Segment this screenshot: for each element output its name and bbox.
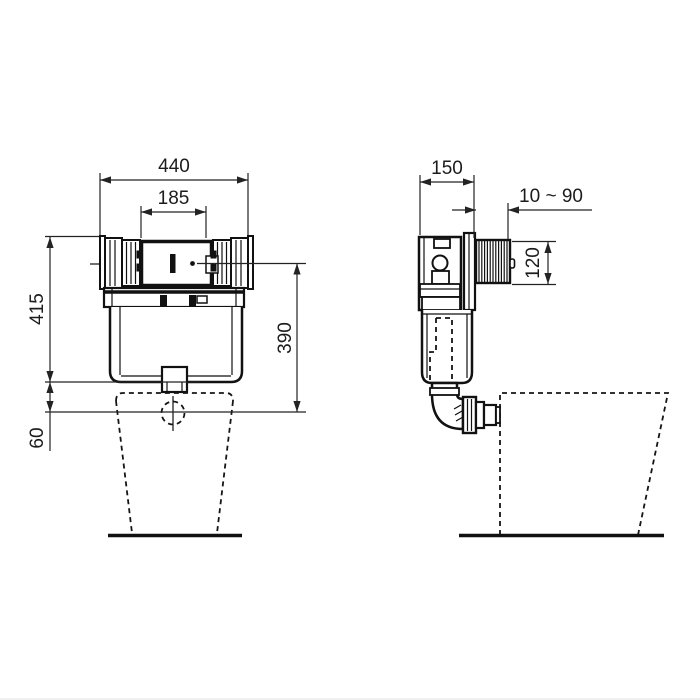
dim-opening-width: 185 (141, 188, 206, 238)
arrowhead (195, 208, 206, 215)
dim-depth: 150 (420, 158, 474, 238)
arrowhead (293, 264, 300, 275)
dim-label-440: 440 (158, 156, 190, 177)
spacer-nub (510, 259, 515, 268)
dim-label-415: 415 (27, 293, 48, 325)
outlet-elbow (430, 383, 463, 429)
dim-spacer-height: 120 (512, 242, 556, 285)
dim-label-60: 60 (27, 427, 48, 448)
arrowhead (46, 401, 53, 412)
arrowhead (544, 273, 551, 284)
arrowhead (46, 237, 53, 248)
arrowhead (237, 176, 248, 183)
arrowhead (463, 178, 474, 185)
flush-button-slot (170, 254, 176, 273)
connector-plate (476, 402, 484, 428)
compartment-base (422, 297, 460, 310)
connector-nozzle (484, 405, 496, 425)
rail-tab (160, 295, 167, 307)
toilet-pan-outline-front (116, 393, 233, 533)
nozzle-tip (496, 407, 500, 423)
water-tank-side (422, 310, 472, 383)
arrowhead (508, 206, 519, 213)
flush-outlet-stub (162, 367, 187, 392)
arrowhead (544, 242, 551, 253)
dim-label-390: 390 (275, 322, 296, 354)
flush-pipe-connection (162, 396, 185, 431)
rail-tab (189, 295, 196, 307)
arrowhead (46, 371, 53, 382)
arrowhead (293, 401, 300, 412)
panel-clip (211, 264, 217, 272)
arrowhead (100, 176, 111, 183)
inlet-notch (434, 239, 450, 248)
outlet-connector (463, 397, 500, 433)
rail-socket (197, 296, 207, 303)
frame-panel-left (105, 238, 122, 288)
dim-adjust-range: 10 ~ 90 (452, 186, 592, 239)
frame-side (419, 233, 475, 310)
tank-side-outline (422, 310, 472, 383)
dim-label-120: 120 (523, 247, 544, 279)
panel-clip (137, 264, 143, 272)
arrowhead (46, 382, 53, 393)
technical-drawing-page: 440 185 415 60 (0, 0, 700, 700)
float-body (432, 271, 449, 284)
dim-label-adjust-range: 10 ~ 90 (519, 186, 583, 207)
toilet-pan-outline-side (500, 393, 668, 535)
pipe-collar (430, 388, 459, 395)
cistern-installation-drawing: 440 185 415 60 (0, 0, 700, 700)
frame-end-cap-right (248, 236, 253, 289)
arrowhead (420, 178, 431, 185)
dim-label-150: 150 (431, 158, 463, 179)
arrowhead (141, 208, 152, 215)
wall-spacer-block (476, 240, 515, 283)
panel-clip (211, 251, 217, 259)
valve-bench (420, 284, 460, 297)
connector-flange (463, 397, 476, 433)
front-view (90, 236, 253, 536)
float-ball (433, 256, 448, 271)
dim-label-185: 185 (158, 188, 190, 209)
panel-clip (137, 251, 143, 259)
mounting-rail (104, 288, 244, 307)
actuator-dot (190, 261, 195, 266)
